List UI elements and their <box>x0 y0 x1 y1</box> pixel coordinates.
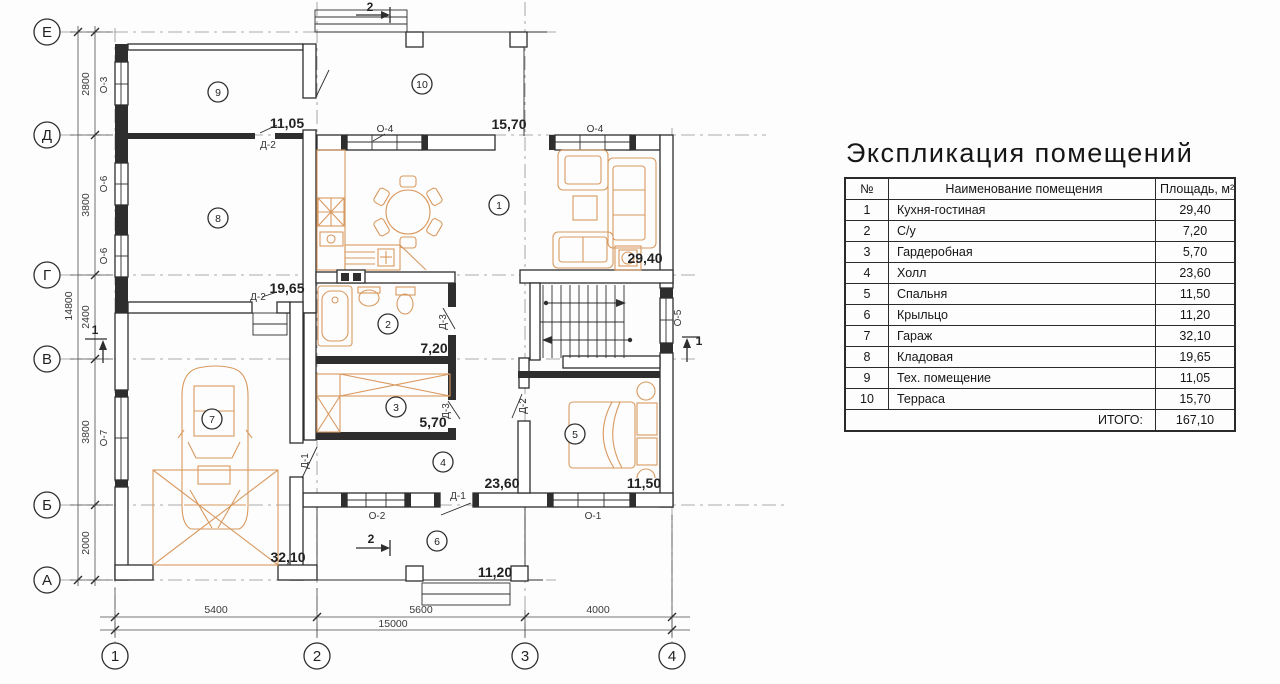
dim-3800a: 3800 <box>80 193 92 217</box>
axis-row-G: Г <box>34 262 60 288</box>
svg-text:Д: Д <box>42 127 52 144</box>
room-bubble-7: 7 <box>202 409 222 429</box>
dim-14800: 14800 <box>63 291 75 320</box>
axis-col-2: 2 <box>304 643 330 669</box>
axis-row-A: А <box>34 567 60 593</box>
room-bubble-3: 3 <box>386 397 406 417</box>
svg-text:7: 7 <box>209 414 215 426</box>
header-name: Наименование помещения <box>889 178 1156 200</box>
bath-sink <box>358 287 380 306</box>
svg-text:8: 8 <box>215 213 221 225</box>
window-o6b <box>115 235 128 277</box>
loveseat <box>553 232 613 268</box>
explication-table: № Наименование помещения Площадь, м² 1Ку… <box>844 177 1236 432</box>
svg-text:9: 9 <box>215 87 221 99</box>
area-labels: 29,40 7,20 5,70 23,60 11,50 11,20 32,10 … <box>269 115 662 580</box>
section-2-bottom: 2 <box>356 532 390 556</box>
svg-text:А: А <box>42 572 52 589</box>
screenshot: 5400 5600 4000 15000 2800 3800 2400 3800… <box>0 0 1280 684</box>
label-d2a: Д-2 <box>260 140 276 151</box>
table-row: 4Холл23,60 <box>845 263 1235 284</box>
label-d3b: Д-3 <box>441 403 452 419</box>
total-label: ИТОГО: <box>845 410 1156 432</box>
room-bubble-1: 1 <box>489 195 509 215</box>
bathtub <box>318 286 352 346</box>
dim-2800: 2800 <box>80 72 92 96</box>
dim-5400: 5400 <box>204 604 228 616</box>
svg-text:2: 2 <box>313 648 321 665</box>
area-terrace: 15,70 <box>491 116 526 132</box>
label-o3: О-3 <box>99 76 110 93</box>
table-header-row: № Наименование помещения Площадь, м² <box>845 178 1235 200</box>
stair-arrow-up <box>544 299 626 307</box>
area-porch: 11,20 <box>478 564 512 580</box>
section-1-right: 1 <box>682 334 703 362</box>
svg-text:6: 6 <box>434 536 440 548</box>
label-d2c: Д-2 <box>518 398 529 414</box>
svg-text:10: 10 <box>416 79 428 91</box>
svg-text:1: 1 <box>496 200 502 212</box>
stove-hatch <box>318 198 344 226</box>
table-row: 7Гараж32,10 <box>845 326 1235 347</box>
svg-text:3: 3 <box>521 648 529 665</box>
stair-arrow-down <box>542 336 632 344</box>
coffee-table <box>573 196 597 220</box>
staircase <box>540 285 632 358</box>
area-kitchen: 29,40 <box>627 250 662 266</box>
svg-text:2: 2 <box>385 319 391 331</box>
dim-2400: 2400 <box>80 305 92 329</box>
dimensions: 5400 5600 4000 15000 2800 3800 2400 3800… <box>63 26 690 638</box>
label-d1a: Д-1 <box>450 491 466 502</box>
table-row: 5Спальня11,50 <box>845 284 1235 305</box>
table-row: 3Гардеробная5,70 <box>845 242 1235 263</box>
area-hall: 23,60 <box>484 475 519 491</box>
window-o3 <box>115 62 128 105</box>
label-o5: О-5 <box>673 309 684 326</box>
label-o7: О-7 <box>99 429 110 446</box>
svg-text:Е: Е <box>42 24 52 41</box>
dim-2000: 2000 <box>80 531 92 555</box>
room-bubble-10: 10 <box>412 74 432 94</box>
axis-row-V: В <box>34 346 60 372</box>
total-value: 167,10 <box>1156 410 1236 432</box>
svg-text:3: 3 <box>393 402 399 414</box>
axis-col-1: 1 <box>102 643 128 669</box>
porch-outline <box>317 507 543 605</box>
room-bubble-8: 8 <box>208 208 228 228</box>
window-o4a <box>347 135 422 150</box>
floor-plan: 5400 5600 4000 15000 2800 3800 2400 3800… <box>0 0 820 684</box>
garage-car <box>178 366 252 529</box>
header-area: Площадь, м² <box>1156 178 1236 200</box>
room-bubble-6: 6 <box>427 531 447 551</box>
area-bedroom: 11,50 <box>627 475 661 491</box>
label-o4b: О-4 <box>587 124 604 135</box>
label-o6b: О-6 <box>99 247 110 264</box>
label-d1b: Д-1 <box>300 453 311 469</box>
room-bubble-2: 2 <box>378 314 398 334</box>
table-row: 6Крыльцо11,20 <box>845 305 1235 326</box>
window-o7 <box>115 397 128 480</box>
bedside-lamp <box>637 382 655 400</box>
table-row: 8Кладовая19,65 <box>845 347 1235 368</box>
window-o2 <box>347 493 405 507</box>
window-o6a <box>115 163 128 205</box>
stove-wall-symbol <box>337 270 365 283</box>
dim-3800b: 3800 <box>80 420 92 444</box>
axis-row-E: Е <box>34 19 60 45</box>
window-o1 <box>553 493 630 507</box>
nightstand-1 <box>637 403 657 435</box>
window-o5 <box>660 298 673 343</box>
explication: Экспликация помещений № Наименование пом… <box>844 138 1216 432</box>
svg-text:1: 1 <box>696 334 703 348</box>
table-row: 10Терраса15,70 <box>845 389 1235 410</box>
area-garage: 32,10 <box>270 549 305 565</box>
nightstand-2 <box>637 438 657 465</box>
label-o6a: О-6 <box>99 175 110 192</box>
garage-door-steps <box>253 313 287 335</box>
svg-text:1: 1 <box>92 323 99 337</box>
armchair <box>558 150 608 190</box>
svg-text:5: 5 <box>572 429 578 441</box>
dim-5600: 5600 <box>409 604 433 616</box>
terrace-steps <box>315 10 407 32</box>
room-bubble-5: 5 <box>565 424 585 444</box>
sofa <box>608 158 656 248</box>
label-d3a: Д-3 <box>438 314 449 330</box>
section-2-top: 2 <box>356 0 390 23</box>
svg-text:В: В <box>42 351 52 368</box>
axis-row-D: Д <box>34 122 60 148</box>
toilet <box>396 287 415 314</box>
label-o1: О-1 <box>585 511 602 522</box>
header-num: № <box>845 178 889 200</box>
label-o2: О-2 <box>369 511 386 522</box>
svg-text:1: 1 <box>111 648 119 665</box>
axis-col-3: 3 <box>512 643 538 669</box>
area-storage: 19,65 <box>269 280 304 296</box>
svg-text:Г: Г <box>43 267 51 284</box>
dim-15000: 15000 <box>378 618 407 630</box>
svg-text:Б: Б <box>42 497 52 514</box>
label-o4a: О-4 <box>377 124 394 135</box>
axis-row-B: Б <box>34 492 60 518</box>
table-row: 2С/у7,20 <box>845 221 1235 242</box>
area-bath: 7,20 <box>420 340 447 356</box>
table-row: 1Кухня-гостиная29,40 <box>845 200 1235 221</box>
table-total-row: ИТОГО: 167,10 <box>845 410 1235 432</box>
svg-text:4: 4 <box>668 648 676 665</box>
room-bubble-4: 4 <box>433 452 453 472</box>
window-o4b <box>555 135 630 150</box>
svg-text:2: 2 <box>367 0 374 14</box>
kitchen-furniture <box>317 150 426 270</box>
svg-text:4: 4 <box>440 457 446 469</box>
explication-title: Экспликация помещений <box>846 138 1216 169</box>
area-techroom: 11,05 <box>270 115 304 131</box>
dim-4000: 4000 <box>586 604 610 616</box>
bathroom-fixtures <box>318 286 415 346</box>
label-d2b: Д-2 <box>250 292 266 303</box>
porch-steps <box>422 583 510 605</box>
room-bubble-9: 9 <box>208 82 228 102</box>
svg-text:2: 2 <box>368 532 375 546</box>
dining-table <box>373 176 443 248</box>
table-row: 9Тех. помещение11,05 <box>845 368 1235 389</box>
axis-col-4: 4 <box>659 643 685 669</box>
